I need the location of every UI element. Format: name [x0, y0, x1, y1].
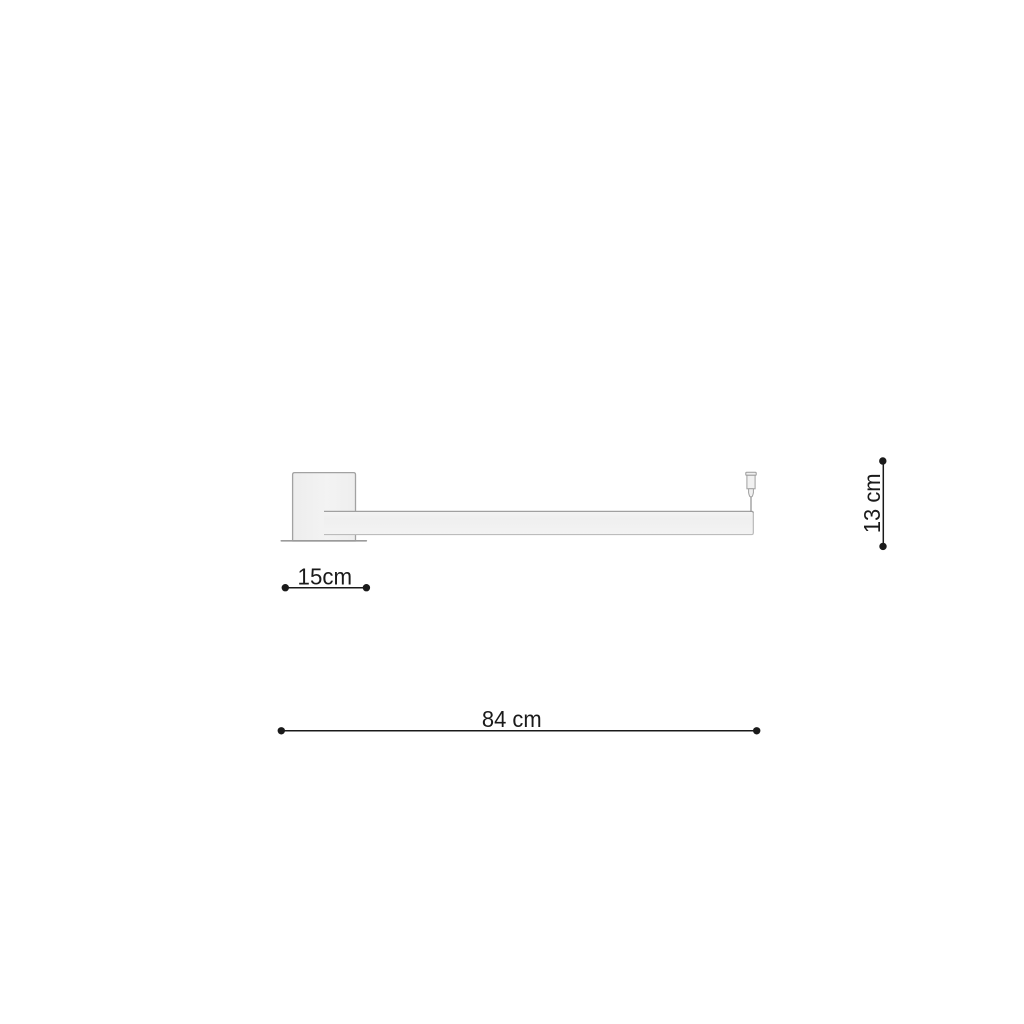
svg-text:15cm: 15cm [298, 564, 353, 590]
svg-text:84 cm: 84 cm [482, 706, 542, 732]
svg-text:13 cm: 13 cm [859, 473, 885, 533]
